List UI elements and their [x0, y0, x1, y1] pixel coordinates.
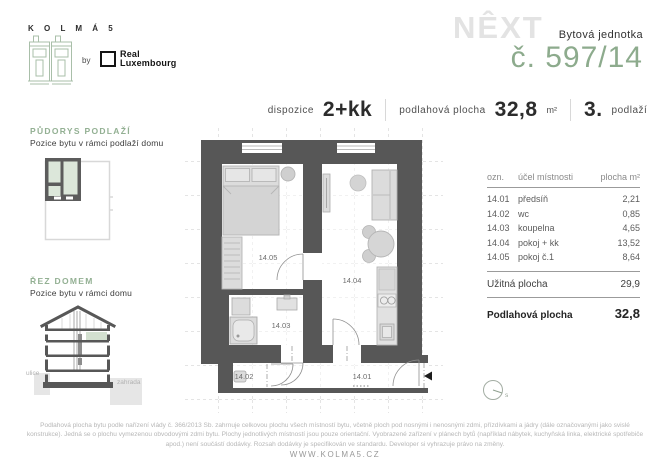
room-label-14-01: 14.01	[353, 372, 372, 381]
sidebar-section-title: ŘEZ DOMEM	[30, 276, 94, 286]
room-id: 14.01	[487, 192, 518, 207]
section-unit-highlight	[86, 332, 107, 341]
real-luxembourg-square-icon	[100, 51, 116, 67]
room-name: wc	[518, 207, 622, 222]
bed-icon	[223, 166, 279, 235]
room-name: předsíň	[518, 192, 622, 207]
ceiling-light-icon	[350, 175, 366, 191]
room-area: 8,64	[622, 250, 640, 265]
plant-icon	[281, 167, 295, 181]
unit-type-label: Bytová jednotka	[559, 29, 643, 41]
tv-icon	[323, 174, 330, 212]
hall-strip	[233, 363, 420, 388]
table-row: 14.02 wc 0,85	[487, 207, 640, 222]
spec-bar: dispozice 2+kk podlahová plocha 32,8 m² …	[250, 98, 665, 122]
table-row: 14.05 pokoj č.1 8,64	[487, 250, 640, 265]
kolma-logo: K O L M Á 5	[28, 24, 88, 33]
area-table: ozn. účel místnosti plocha m² 14.01 před…	[487, 172, 640, 321]
real-luxembourg-line2: Luxembourg	[120, 59, 177, 68]
room-id: 14.04	[487, 236, 518, 251]
room-id: 14.02	[487, 207, 518, 222]
kolma-buildings-icon	[28, 34, 75, 86]
mini-floorplan-diagram	[33, 152, 148, 252]
sofa-icon	[372, 170, 397, 220]
table-row: 14.01 předsíň 2,21	[487, 192, 640, 207]
street-label: ulice	[26, 370, 40, 377]
room-id: 14.05	[487, 250, 518, 265]
kolma-logo-text: K O L M Á 5	[28, 24, 88, 33]
room-name: pokoj č.1	[518, 250, 622, 265]
sidebar-floorplan-title: PŮDORYS PODLAŽÍ	[30, 126, 131, 136]
table-row: 14.04 pokoj + kk 13,52	[487, 236, 640, 251]
wardrobe-icon	[222, 237, 242, 289]
table-header-ozn: ozn.	[487, 172, 518, 182]
shower-icon	[230, 317, 257, 344]
spec-area-value: 32,8	[495, 98, 538, 122]
compass-label: s	[505, 392, 509, 399]
spec-divider	[570, 99, 571, 121]
room-name: koupelna	[518, 221, 622, 236]
spec-floor-value: 3.	[584, 98, 603, 122]
room-id: 14.03	[487, 221, 518, 236]
table-header-ucel: účel místnosti	[518, 172, 600, 182]
spec-divider	[385, 99, 386, 121]
website-url[interactable]: WWW.KOLMA5.CZ	[0, 450, 670, 459]
room-area: 2,21	[622, 192, 640, 207]
usable-area-label: Užitná plocha	[487, 279, 621, 290]
footer-disclaimer: Podlahová plocha bytu podle nařízení vlá…	[25, 421, 645, 449]
spec-area-unit: m²	[547, 105, 558, 115]
main-floor-plan: 14.05 14.04 14.03 14.02 14.01	[185, 128, 443, 413]
sidebar-floorplan-subtitle: Pozice bytu v rámci podlaží domu	[30, 138, 164, 148]
room-label-14-05: 14.05	[259, 253, 278, 262]
table-header-plocha: plocha m²	[600, 172, 640, 182]
usable-area-row: Užitná plocha 29,9	[487, 272, 640, 297]
room-name: pokoj + kk	[518, 236, 617, 251]
garden-label: zahrada	[117, 379, 141, 386]
brochure-page: K O L M Á 5 by Real Luxembourg NÊXT Byto…	[0, 0, 670, 475]
room-area: 0,85	[622, 207, 640, 222]
room-label-14-04: 14.04	[343, 276, 362, 285]
washing-machine-icon	[232, 298, 250, 315]
usable-area-value: 29,9	[621, 279, 640, 290]
kitchen-counter-icon	[377, 267, 397, 345]
sidebar-section-subtitle: Pozice bytu v rámci domu	[30, 288, 132, 298]
room-label-14-02: 14.02	[235, 372, 254, 381]
house-section-diagram: ulice zahrada	[22, 298, 154, 413]
spec-area-label: podlahová plocha	[399, 105, 485, 116]
spec-dispozice-value: 2+kk	[323, 98, 372, 122]
table-header-row: ozn. účel místnosti plocha m²	[487, 172, 640, 187]
table-row: 14.03 koupelna 4,65	[487, 221, 640, 236]
total-area-label: Podlahová plocha	[487, 310, 615, 321]
room-area: 13,52	[617, 236, 640, 251]
real-luxembourg-logo: Real Luxembourg	[100, 50, 177, 68]
unit-number: č. 597/14	[511, 41, 643, 75]
room-area: 4,65	[622, 221, 640, 236]
spec-dispozice-label: dispozice	[268, 105, 314, 116]
spec-floor-label: podlaží	[612, 105, 648, 116]
compass-icon: s	[479, 377, 517, 407]
total-area-value: 32,8	[615, 306, 640, 321]
total-area-row: Podlahová plocha 32,8	[487, 298, 640, 321]
room-label-14-03: 14.03	[272, 321, 291, 330]
real-luxembourg-name: Real Luxembourg	[120, 50, 177, 68]
by-label: by	[82, 56, 90, 65]
